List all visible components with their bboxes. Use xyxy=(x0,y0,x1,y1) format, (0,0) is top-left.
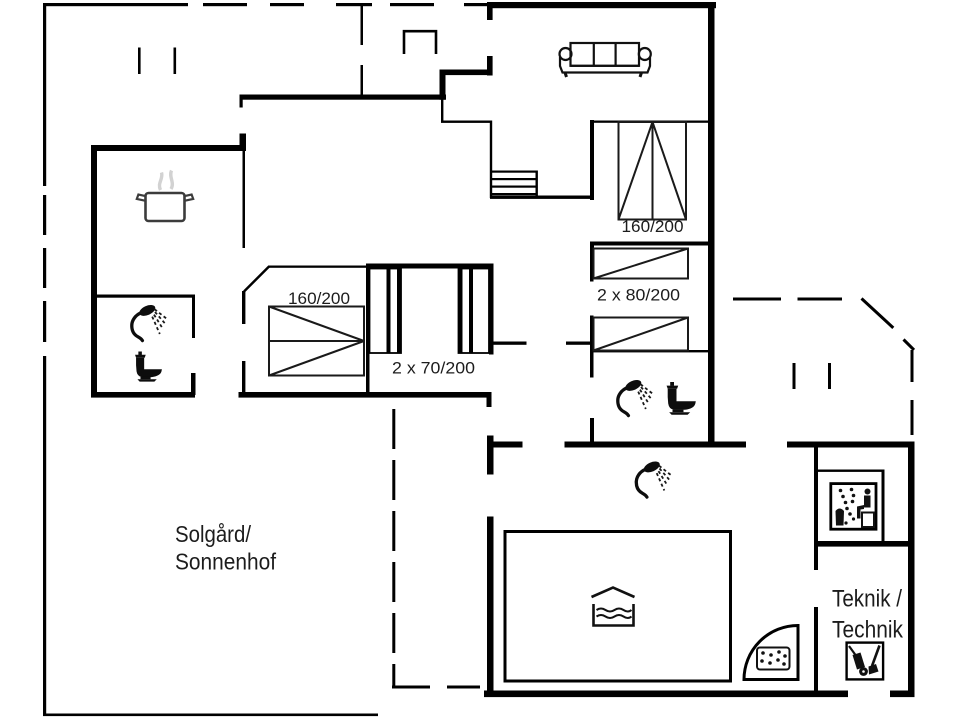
svg-text:160/200: 160/200 xyxy=(622,217,684,236)
svg-text:Technik: Technik xyxy=(832,617,904,644)
svg-text:Solgård/: Solgård/ xyxy=(175,521,252,547)
svg-text:Teknik /: Teknik / xyxy=(832,586,902,613)
svg-text:160/200: 160/200 xyxy=(288,289,350,308)
svg-text:2 x 80/200: 2 x 80/200 xyxy=(597,286,680,305)
svg-text:Sonnenhof: Sonnenhof xyxy=(175,549,277,575)
svg-text:2 x 70/200: 2 x 70/200 xyxy=(392,359,475,378)
